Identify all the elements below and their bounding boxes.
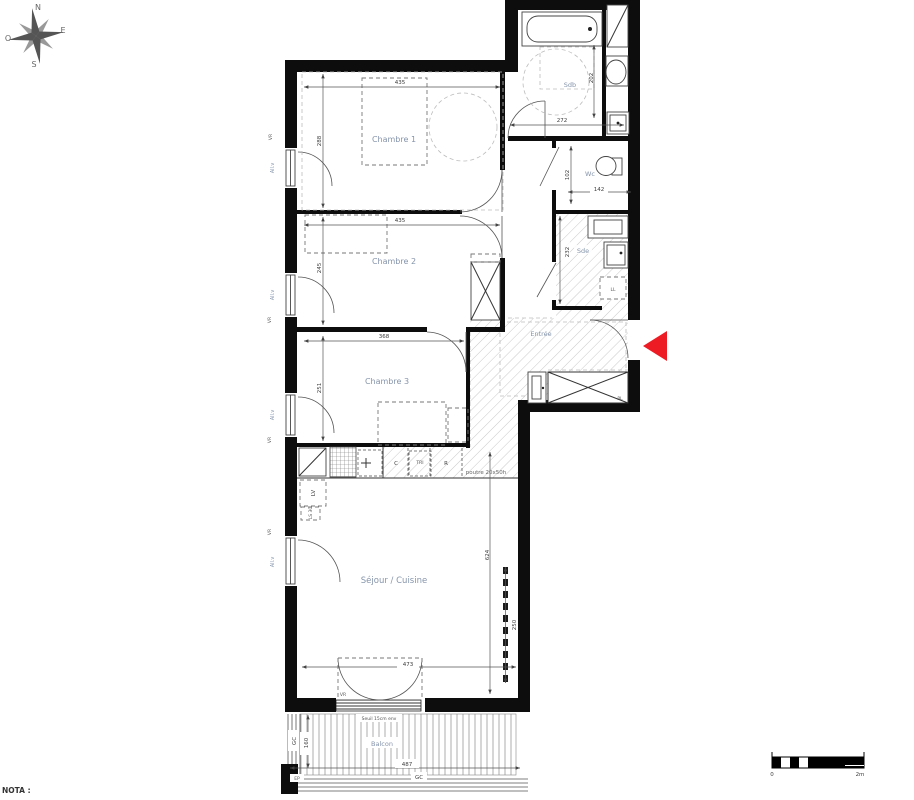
balcony-depth-dim: 160	[304, 737, 310, 748]
balcony-width-dim: 487	[402, 762, 413, 768]
cooktop-label: C	[394, 461, 398, 467]
sdb-width-dim: 272	[557, 118, 568, 124]
door-threshold	[336, 700, 421, 711]
chambre1-width-dim: 435	[395, 80, 406, 86]
chambre1-label: Chambre 1	[372, 135, 416, 144]
sde-height-dim: 232	[565, 247, 571, 258]
balcony: Seuil 15cm env Balcon 487 GC GC 160 EP	[281, 700, 528, 794]
facade-windows: All.v All.v All.v All.v VR VR VR VR VR	[267, 134, 346, 698]
window-type-label: All.v	[270, 557, 276, 567]
wc-width-dim: 142	[594, 187, 605, 193]
sejour-label: Séjour / Cuisine	[361, 575, 427, 586]
window-type-label: All.v	[270, 410, 276, 420]
nota-label: NOTA :	[2, 786, 31, 795]
beam-note: poutre 20x50h	[466, 470, 507, 476]
railing-label: GC	[415, 775, 423, 781]
window-type-label: All.v	[270, 290, 276, 300]
sejour-bay-dim: 473	[403, 662, 414, 668]
balcony-label: Balcon	[371, 740, 393, 748]
compass-north-label: N	[35, 3, 41, 12]
waste-sorting-label: TRI	[415, 460, 423, 466]
scale-bar: 0 2m	[770, 752, 864, 778]
entrance-arrow-icon	[643, 331, 667, 361]
room-sdb: Sdb 272 202	[510, 5, 629, 134]
scale-zero-label: 0	[770, 772, 774, 778]
compass-east-label: E	[60, 26, 65, 35]
floor-plan-page: N E O S Seuil 15cm env Balcon 487 GC	[0, 0, 914, 800]
chambre1-height-dim: 288	[317, 135, 323, 146]
shutter-label: VR	[268, 134, 274, 140]
dishwasher-label: LV	[311, 490, 317, 496]
room-chambre3: Chambre 3 368 251	[304, 334, 468, 445]
entree-label: Entrée	[530, 330, 551, 338]
chambre2-width-dim: 435	[395, 218, 406, 224]
sde-label: Sde	[577, 247, 589, 255]
shutter-label: VR	[267, 317, 273, 323]
fridge-label: R	[444, 461, 448, 467]
shutter-label: VR	[267, 437, 273, 443]
window-type-label: All.v	[270, 163, 276, 173]
compass-south-label: S	[31, 60, 36, 69]
closet-pl-label: PL	[617, 396, 623, 402]
chambre2-height-dim: 245	[317, 262, 323, 273]
ls-label: LS 30	[308, 507, 314, 520]
scale-2m-label: 2m	[856, 772, 865, 778]
shutter-label: VR	[340, 692, 346, 698]
chambre3-label: Chambre 3	[365, 377, 409, 386]
room-chambre1: Chambre 1 435 288	[302, 72, 503, 210]
floor-plan-drawing: N E O S Seuil 15cm env Balcon 487 GC	[0, 0, 914, 800]
washer-label: LL	[610, 287, 616, 293]
chambre3-height-dim: 251	[317, 383, 323, 394]
compass-rose-icon: N E O S	[4, 3, 67, 69]
sdb-label: Sdb	[564, 81, 576, 89]
sejour-niche-dim: 250	[512, 619, 518, 630]
railing-side-label: GC	[292, 737, 298, 745]
chambre3-width-dim: 368	[379, 334, 390, 340]
sejour-height-dim: 624	[485, 549, 491, 560]
sdb-height-dim: 202	[589, 73, 595, 84]
room-wc: Wc 102 142	[565, 146, 631, 204]
compass-west-label: O	[5, 34, 11, 43]
shutter-label: VR	[267, 529, 273, 535]
rainwater-pipe-label: EP	[294, 776, 300, 782]
wc-height-dim: 102	[565, 170, 571, 181]
wc-label: Wc	[585, 170, 595, 178]
threshold-note: Seuil 15cm env	[362, 716, 397, 722]
chambre2-label: Chambre 2	[372, 257, 416, 266]
